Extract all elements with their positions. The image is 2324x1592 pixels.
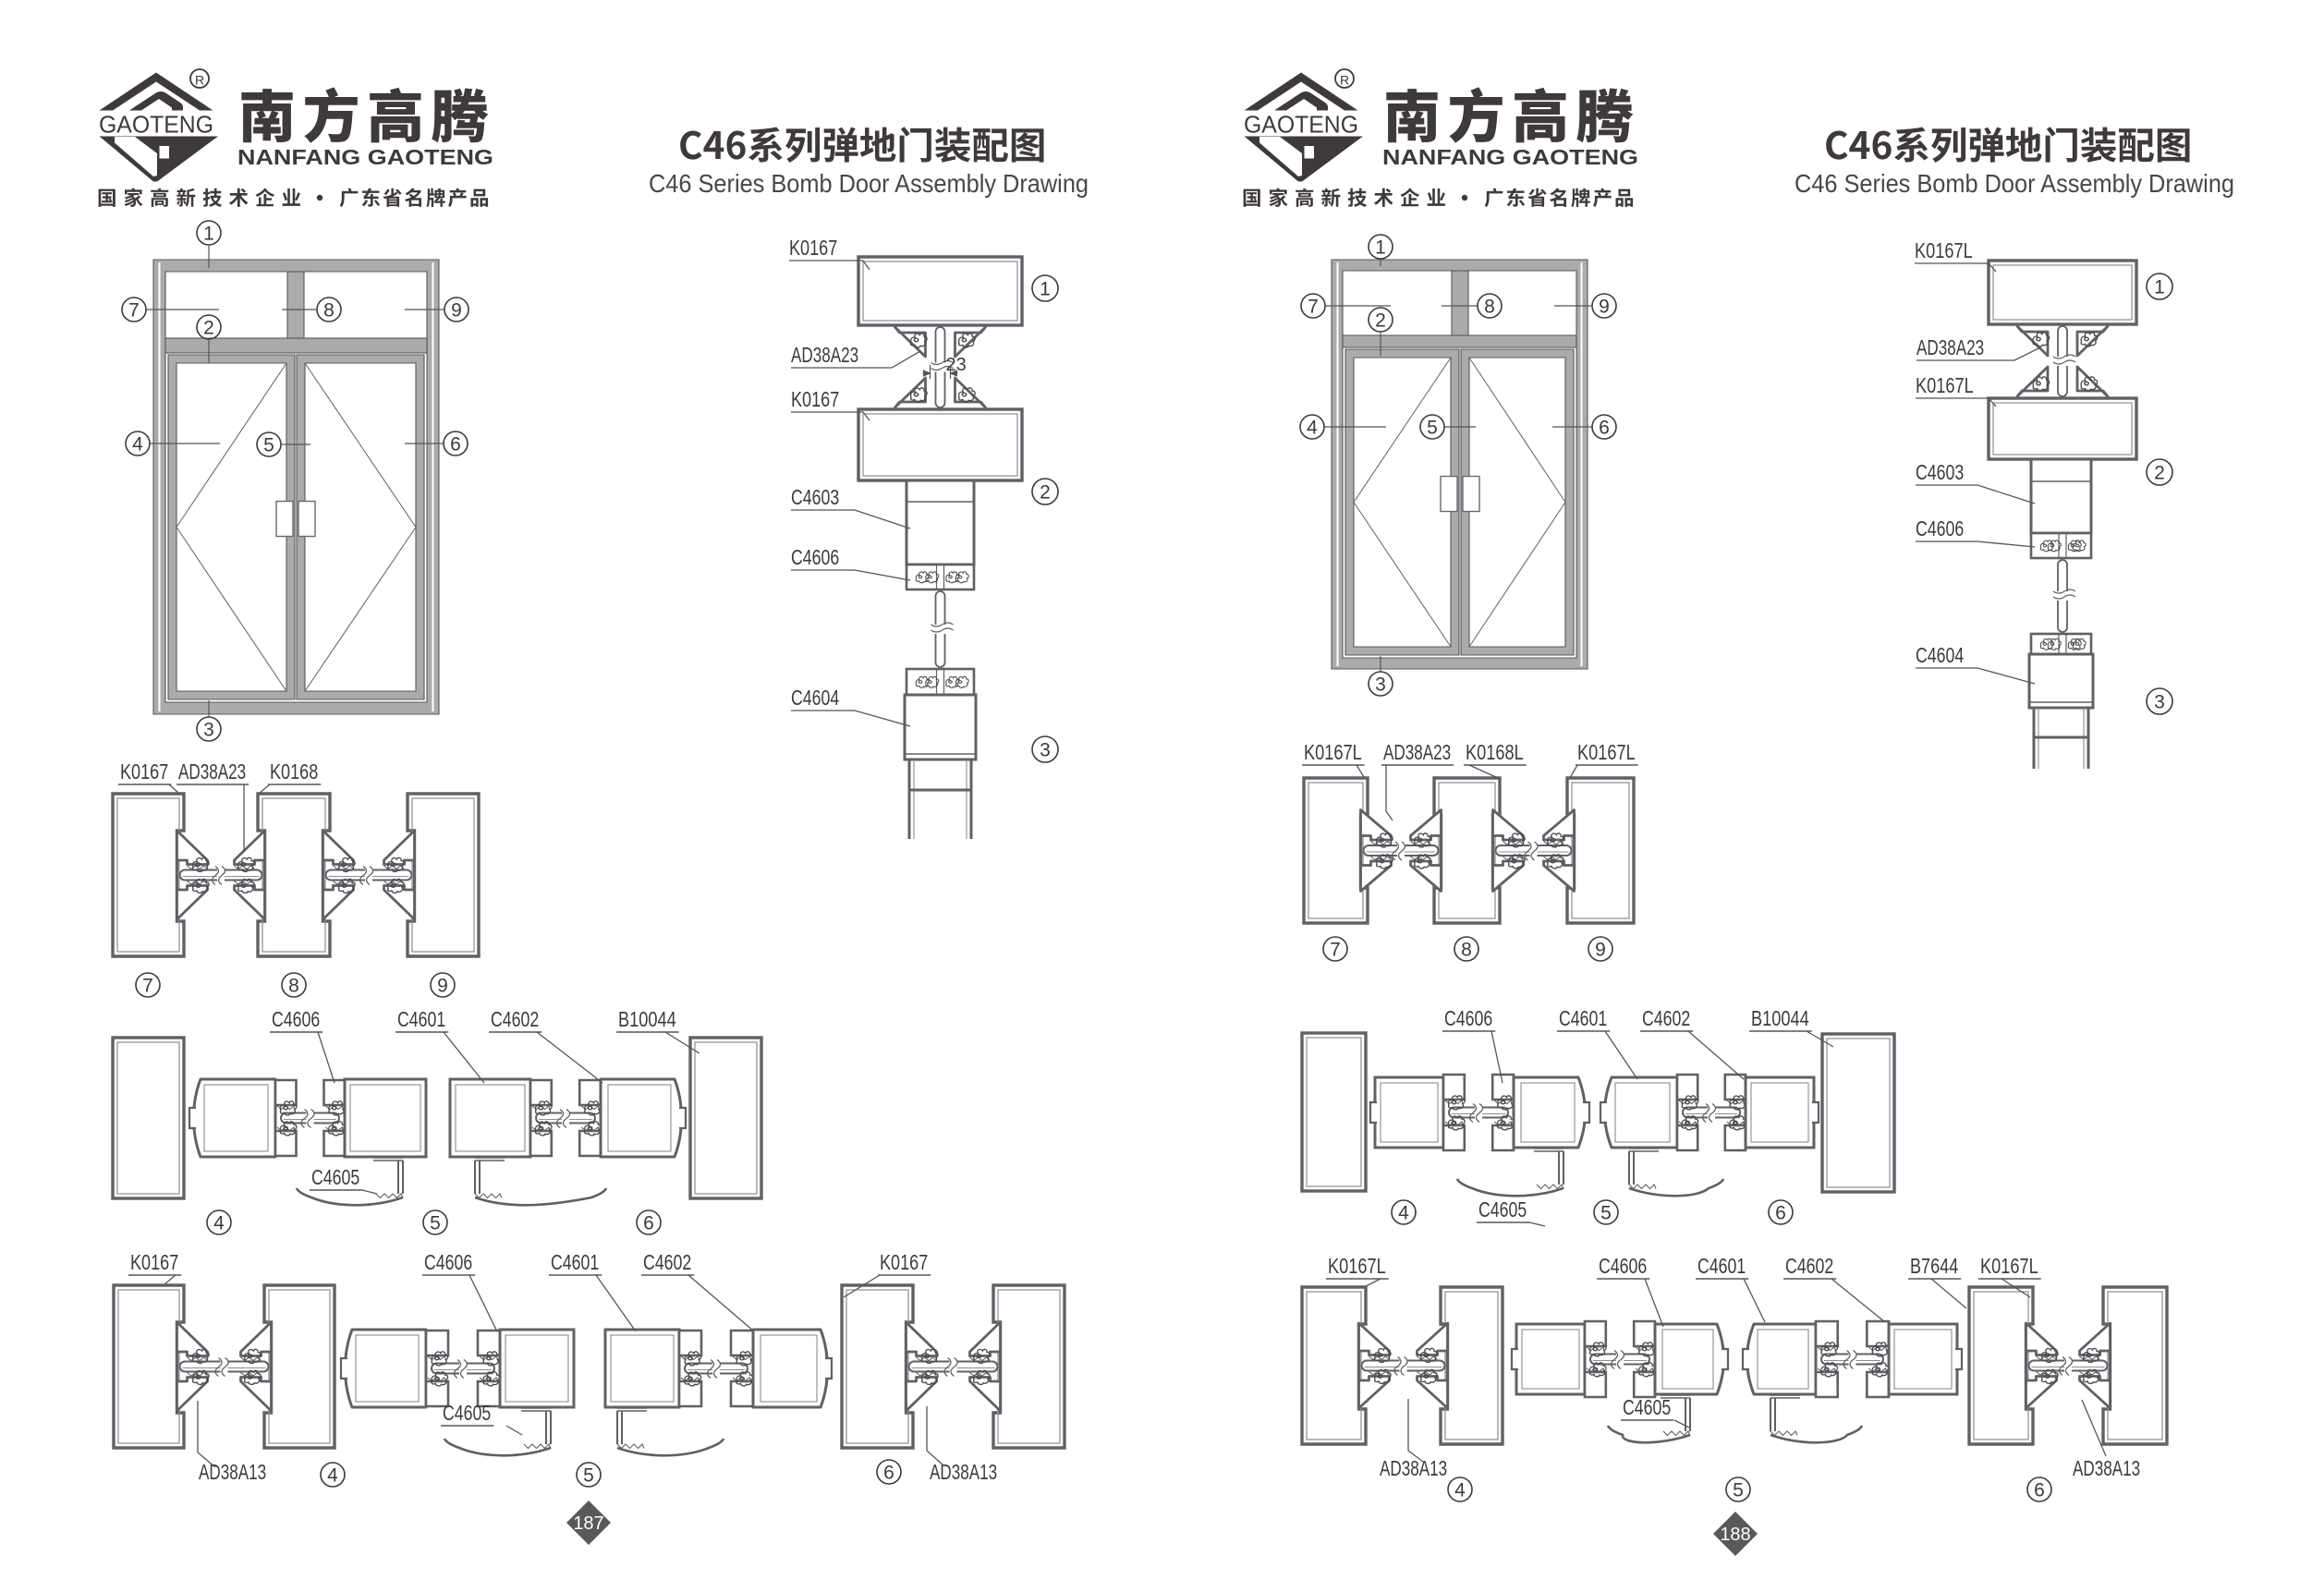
svg-text:7: 7 (1330, 940, 1341, 961)
svg-text:K0167: K0167 (880, 1250, 928, 1274)
svg-text:6: 6 (1775, 1203, 1786, 1224)
svg-text:4: 4 (1307, 418, 1318, 439)
svg-text:7: 7 (128, 300, 140, 322)
svg-text:C4606: C4606 (1916, 516, 1964, 541)
svg-text:K0167: K0167 (791, 387, 839, 411)
svg-text:C4602: C4602 (491, 1007, 539, 1031)
svg-text:4: 4 (132, 434, 143, 456)
svg-text:AD38A23: AD38A23 (1383, 740, 1451, 764)
svg-text:9: 9 (1599, 297, 1610, 318)
svg-text:5: 5 (1600, 1203, 1612, 1224)
svg-text:K0168: K0168 (270, 760, 318, 784)
svg-text:5: 5 (430, 1213, 441, 1234)
svg-text:C4602: C4602 (643, 1250, 691, 1274)
svg-text:K0167L: K0167L (1915, 238, 1973, 262)
svg-text:C4603: C4603 (791, 485, 839, 509)
svg-text:C46 Series Bomb Door Assembly: C46 Series Bomb Door Assembly Drawing (649, 169, 1089, 198)
svg-text:8: 8 (288, 976, 299, 997)
svg-text:7: 7 (142, 976, 153, 997)
svg-text:8: 8 (1461, 940, 1472, 961)
svg-text:AD38A13: AD38A13 (2073, 1456, 2140, 1480)
svg-text:C4601: C4601 (397, 1007, 445, 1031)
svg-text:8: 8 (323, 300, 335, 322)
svg-text:AD38A13: AD38A13 (930, 1460, 997, 1484)
svg-text:C4605: C4605 (1623, 1395, 1671, 1419)
svg-text:1: 1 (203, 224, 214, 245)
svg-text:C4604: C4604 (1916, 643, 1964, 667)
svg-text:B10044: B10044 (1751, 1006, 1809, 1030)
svg-text:4: 4 (213, 1213, 225, 1234)
svg-text:6: 6 (883, 1463, 894, 1484)
svg-text:B10044: B10044 (618, 1007, 676, 1031)
svg-text:R: R (195, 73, 204, 88)
svg-text:1: 1 (1040, 279, 1051, 300)
svg-text:1: 1 (2154, 277, 2165, 298)
svg-text:C4603: C4603 (1916, 460, 1964, 484)
svg-text:3: 3 (2154, 692, 2165, 713)
svg-text:3: 3 (1375, 674, 1386, 696)
svg-text:3: 3 (1040, 740, 1051, 761)
svg-text:K0167: K0167 (789, 236, 837, 260)
svg-text:AD38A23: AD38A23 (1916, 335, 1984, 359)
svg-text:C46 Series Bomb Door Assembly: C46 Series Bomb Door Assembly Drawing (1795, 169, 2234, 198)
svg-text:K0168L: K0168L (1466, 740, 1524, 764)
svg-text:6: 6 (643, 1213, 654, 1234)
svg-text:AD38A13: AD38A13 (1380, 1456, 1447, 1480)
svg-text:C4601: C4601 (551, 1250, 599, 1274)
svg-text:C4601: C4601 (1559, 1006, 1607, 1030)
svg-text:6: 6 (450, 434, 461, 456)
svg-text:C4602: C4602 (1785, 1254, 1833, 1278)
svg-text:B7644: B7644 (1910, 1254, 1958, 1278)
svg-text:C4602: C4602 (1642, 1006, 1690, 1030)
svg-text:C4606: C4606 (272, 1007, 320, 1031)
svg-text:K0167: K0167 (120, 760, 168, 784)
svg-text:4: 4 (1398, 1203, 1409, 1224)
svg-text:6: 6 (1599, 418, 1610, 439)
svg-text:3: 3 (203, 720, 214, 741)
svg-text:K0167L: K0167L (1328, 1254, 1386, 1278)
svg-text:1: 1 (1375, 237, 1386, 259)
svg-text:2: 2 (1375, 310, 1386, 332)
svg-text:NANFANG GAOTENG: NANFANG GAOTENG (237, 145, 493, 169)
svg-text:C4606: C4606 (791, 545, 839, 569)
svg-text:K0167: K0167 (130, 1250, 178, 1274)
svg-text:C4606: C4606 (1444, 1006, 1492, 1030)
svg-text:C4605: C4605 (1478, 1197, 1527, 1221)
svg-text:NANFANG GAOTENG: NANFANG GAOTENG (1382, 145, 1638, 169)
svg-text:4: 4 (1454, 1480, 1466, 1501)
svg-text:9: 9 (1595, 940, 1606, 961)
svg-text:9: 9 (437, 976, 448, 997)
svg-text:GAOTENG: GAOTENG (1244, 111, 1358, 139)
svg-text:C4606: C4606 (1599, 1254, 1647, 1278)
svg-text:C4604: C4604 (791, 686, 839, 710)
svg-text:K0167L: K0167L (1577, 740, 1636, 764)
svg-text:9: 9 (451, 300, 462, 322)
svg-text:8: 8 (1484, 297, 1495, 318)
svg-text:187: 187 (573, 1513, 603, 1534)
svg-text:7: 7 (1308, 297, 1319, 318)
svg-text:5: 5 (1733, 1480, 1744, 1501)
svg-text:K0167L: K0167L (1980, 1254, 2038, 1278)
svg-text:6: 6 (2034, 1480, 2045, 1501)
svg-text:188: 188 (1720, 1525, 1750, 1545)
svg-text:5: 5 (583, 1465, 594, 1487)
svg-text:R: R (1340, 73, 1349, 88)
svg-text:2: 2 (1040, 482, 1051, 504)
svg-text:C4606: C4606 (424, 1250, 472, 1274)
svg-text:K0167L: K0167L (1304, 740, 1362, 764)
svg-text:C4605: C4605 (443, 1401, 491, 1425)
svg-text:GAOTENG: GAOTENG (99, 111, 213, 139)
svg-text:AD38A23: AD38A23 (791, 343, 858, 367)
svg-text:2: 2 (2154, 463, 2165, 484)
svg-text:2: 2 (203, 318, 214, 339)
svg-text:K0167L: K0167L (1916, 373, 1974, 397)
svg-text:5: 5 (1427, 418, 1438, 439)
svg-text:AD38A23: AD38A23 (178, 760, 246, 784)
svg-text:C4605: C4605 (311, 1165, 359, 1189)
svg-text:AD38A13: AD38A13 (199, 1460, 266, 1484)
svg-text:C4601: C4601 (1697, 1254, 1746, 1278)
svg-text:5: 5 (263, 435, 274, 456)
svg-text:4: 4 (327, 1465, 338, 1487)
